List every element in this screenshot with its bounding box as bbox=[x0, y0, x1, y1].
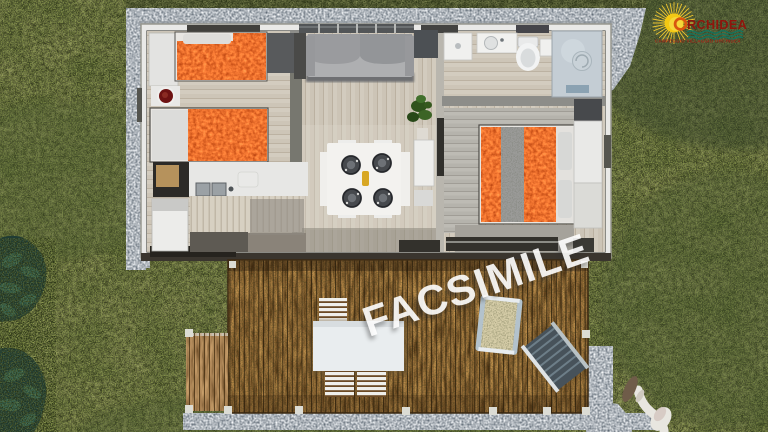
svg-text:CAMPEGGIO VILLAGGIO ORCHIDEA: CAMPEGGIO VILLAGGIO ORCHIDEA bbox=[655, 39, 741, 44]
svg-text:RCHIDEA: RCHIDEA bbox=[687, 18, 747, 32]
